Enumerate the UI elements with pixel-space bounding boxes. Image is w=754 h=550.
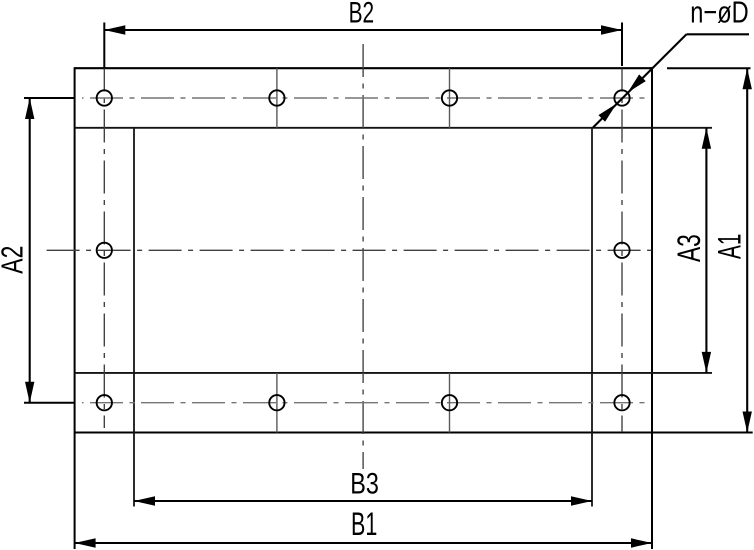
svg-text:B3: B3: [350, 468, 379, 501]
svg-text:A1: A1: [712, 234, 748, 259]
svg-text:B1: B1: [351, 506, 377, 542]
svg-text:A2: A2: [0, 246, 29, 274]
svg-text:n−øD: n−øD: [690, 0, 748, 30]
svg-text:A3: A3: [671, 234, 707, 262]
svg-text:B2: B2: [349, 0, 375, 29]
